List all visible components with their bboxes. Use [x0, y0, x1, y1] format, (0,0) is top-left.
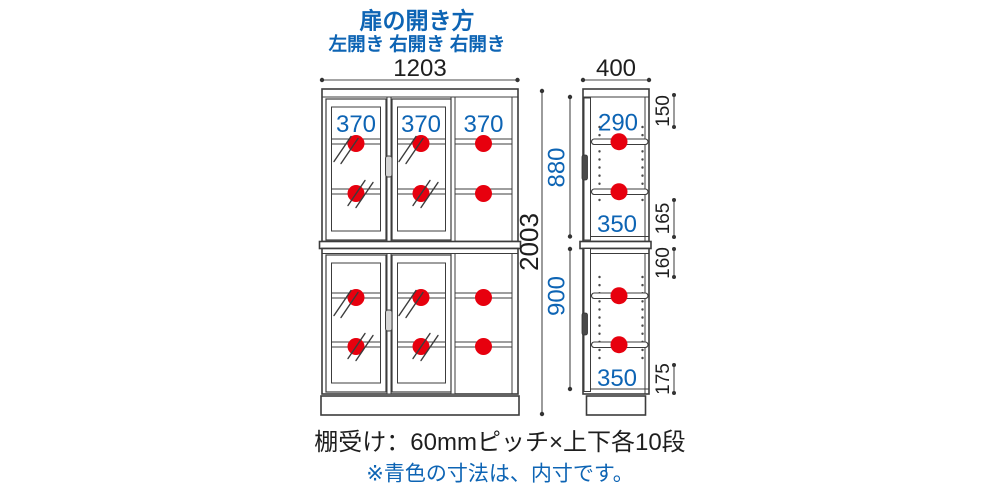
- shelf-pin-marker: [611, 183, 628, 200]
- side-offset-dimension-165: 165: [653, 198, 676, 239]
- door-handle-icon: [386, 310, 393, 331]
- front-upper-divider-right: [451, 97, 455, 242]
- upper-height-dimension: 880: [543, 95, 572, 239]
- front-base-plinth: [321, 396, 519, 415]
- side-depth-dim-label: 400: [596, 55, 636, 82]
- side-offset-dimension-150: 150: [653, 93, 676, 129]
- side-lower-bottom-inner-dim-label: 350: [597, 365, 637, 392]
- inner-dimension-note: ※青色の寸法は、内寸です。: [366, 463, 634, 486]
- side-offset-dim-label: 165: [653, 203, 674, 235]
- door-handle-icon: [582, 313, 588, 335]
- shelf-pin-marker: [475, 289, 492, 306]
- side-offset-dim-label: 150: [653, 95, 674, 127]
- side-offset-dimension-175: 175: [653, 363, 676, 395]
- door-opening-directions: 左開き 右開き 右開き: [328, 34, 506, 55]
- upper-height-dim-label: 880: [543, 147, 570, 187]
- total-height-dim-label: 2003: [514, 213, 544, 271]
- side-top-inner-dim-label: 290: [598, 110, 638, 137]
- door-opening-title: 扉の開き方: [360, 8, 475, 34]
- shelf-pitch-note: 棚受け：60mmピッチ×上下各10段: [314, 429, 685, 456]
- door-handle-icon: [386, 156, 393, 177]
- shelf-pin-marker: [611, 336, 628, 353]
- door-handle-icon: [582, 155, 588, 180]
- front-lower-divider-right: [451, 254, 455, 395]
- cabinet-dimension-diagram: 扉の開き方 左開き 右開き 右開き: [0, 0, 1000, 500]
- side-upper-bottom-inner-dim-label: 350: [597, 211, 637, 238]
- side-middle-board: [580, 242, 651, 249]
- side-base-plinth: [587, 396, 646, 415]
- front-view: 370 370 370: [320, 89, 521, 415]
- front-lower-cabinet: [322, 249, 518, 395]
- lower-height-dimension: 900: [543, 247, 572, 391]
- diagram-canvas: 扉の開き方 左開き 右開き 右開き: [0, 0, 1000, 500]
- side-offset-dim-label: 160: [653, 247, 674, 279]
- side-offset-dimension-160: 160: [653, 247, 676, 279]
- column-width-dim-label: 370: [336, 111, 376, 138]
- shelf-pin-marker: [611, 287, 628, 304]
- column-width-dim-label: 370: [401, 111, 441, 138]
- side-depth-dimension: 400: [581, 55, 651, 82]
- side-offset-dim-label: 175: [653, 363, 674, 395]
- front-width-dim-label: 1203: [393, 55, 446, 82]
- front-middle-board: [320, 242, 521, 249]
- front-width-dimension: 1203: [320, 55, 520, 82]
- lower-height-dim-label: 900: [543, 276, 570, 316]
- column-width-dim-label: 370: [463, 111, 503, 138]
- side-view: 290 350 350: [580, 89, 651, 415]
- shelf-pin-marker: [475, 185, 492, 202]
- shelf-pin-marker: [475, 338, 492, 355]
